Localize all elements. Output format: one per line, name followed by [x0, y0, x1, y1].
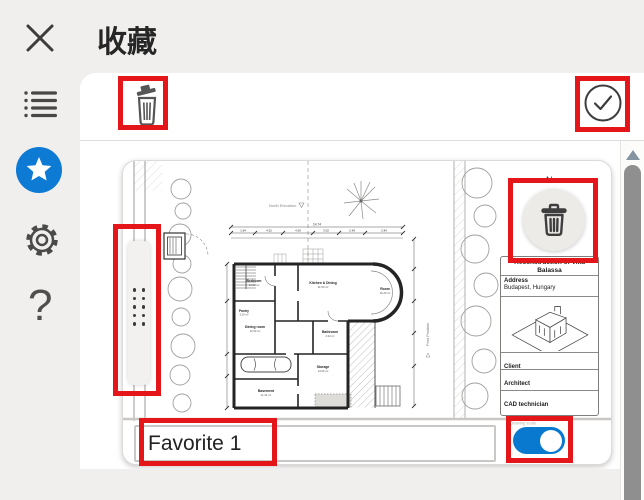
svg-text:2.48: 2.48	[349, 229, 355, 233]
elevation-note: North Elevation	[269, 203, 304, 208]
svg-text:Pantry: Pantry	[239, 309, 249, 313]
svg-text:Bathroom: Bathroom	[322, 330, 338, 334]
favorite-card: North Elevation	[122, 160, 612, 465]
svg-text:4.50: 4.50	[295, 229, 301, 233]
favorite-thumbnail: North Elevation	[123, 161, 611, 464]
visibility-toggle[interactable]	[513, 427, 565, 454]
svg-text:Dining room: Dining room	[245, 325, 265, 329]
sidebar-item-settings[interactable]	[22, 220, 62, 265]
svg-text:4.52: 4.52	[266, 229, 272, 233]
svg-text:Basement: Basement	[258, 389, 275, 393]
sidebar-item-help[interactable]: ?	[28, 281, 52, 331]
delete-item-button[interactable]	[523, 189, 585, 251]
svg-text:14.00 m²: 14.00 m²	[318, 369, 329, 373]
svg-text:1.84: 1.84	[240, 229, 246, 233]
check-circle-icon	[583, 83, 623, 123]
trash-icon	[127, 82, 165, 128]
svg-text:Storage: Storage	[317, 365, 330, 369]
toggle-knob	[540, 430, 562, 452]
favorite-name-input[interactable]	[134, 425, 496, 462]
svg-text:14.74: 14.74	[313, 222, 321, 226]
svg-text:14.00 m²: 14.00 m²	[249, 283, 260, 287]
utility-box	[164, 233, 208, 259]
title-block-architect: Architect	[504, 381, 530, 387]
trash-icon	[539, 203, 569, 237]
svg-text:16.40 m²: 16.40 m²	[380, 291, 391, 295]
trees	[168, 168, 498, 412]
title-block-axonometry	[501, 297, 598, 353]
scrollbar-thumb[interactable]	[624, 165, 641, 500]
scroll-up-icon[interactable]	[626, 150, 640, 160]
delete-favorite-button[interactable]	[127, 82, 165, 128]
svg-text:Kitchen & Dining: Kitchen & Dining	[309, 281, 336, 285]
close-icon	[23, 21, 57, 55]
branching-tree	[344, 181, 379, 219]
svg-text:Bedroom: Bedroom	[247, 279, 262, 283]
sidebar-item-list[interactable]	[23, 88, 59, 125]
svg-text:3.20 m²: 3.20 m²	[239, 313, 248, 317]
drag-dots-icon	[128, 241, 150, 326]
svg-text:Post Position: Post Position	[425, 323, 430, 346]
drag-handle[interactable]	[128, 241, 150, 385]
svg-text:21.50 m²: 21.50 m²	[318, 285, 329, 289]
svg-text:4.34 m²: 4.34 m²	[325, 334, 334, 338]
title-block-title: Reconstruction of Villa Balassa	[501, 257, 598, 276]
list-icon	[23, 88, 59, 120]
svg-text:11.34 m²: 11.34 m²	[261, 393, 272, 397]
north-label: N	[546, 175, 553, 185]
title-block: Reconstruction of Villa Balassa Address …	[500, 256, 599, 416]
svg-text:Room: Room	[380, 287, 390, 291]
entry-paving	[274, 249, 323, 264]
title-block-address: Address Budapest, Hungary	[501, 276, 598, 297]
svg-text:3.02: 3.02	[323, 229, 329, 233]
gear-icon	[22, 220, 62, 260]
help-icon: ?	[28, 281, 52, 330]
close-button[interactable]	[23, 21, 57, 55]
car	[241, 357, 291, 372]
favorites-screen: 收藏 ?	[0, 0, 644, 500]
plot-note: Post Position	[425, 323, 430, 357]
svg-text:2.84: 2.84	[381, 229, 387, 233]
svg-text:12.60 m²: 12.60 m²	[250, 329, 261, 333]
scrollbar[interactable]	[620, 141, 644, 500]
axonometric-house-icon	[505, 299, 595, 351]
page-title: 收藏	[97, 17, 157, 61]
sidebar-item-favorites-active[interactable]	[16, 147, 62, 193]
confirm-selection-button[interactable]	[583, 83, 623, 123]
panel-footer	[80, 469, 620, 500]
title-block-cad: CAD technician	[504, 402, 548, 408]
star-icon	[16, 147, 62, 193]
svg-text:North Elevation: North Elevation	[269, 203, 296, 208]
drawing-scale-note: Drawing scale	[510, 421, 537, 426]
dimension-labels: 14.74 1.84 4.52 4.50 3.02 2.48 2.84	[240, 222, 387, 232]
